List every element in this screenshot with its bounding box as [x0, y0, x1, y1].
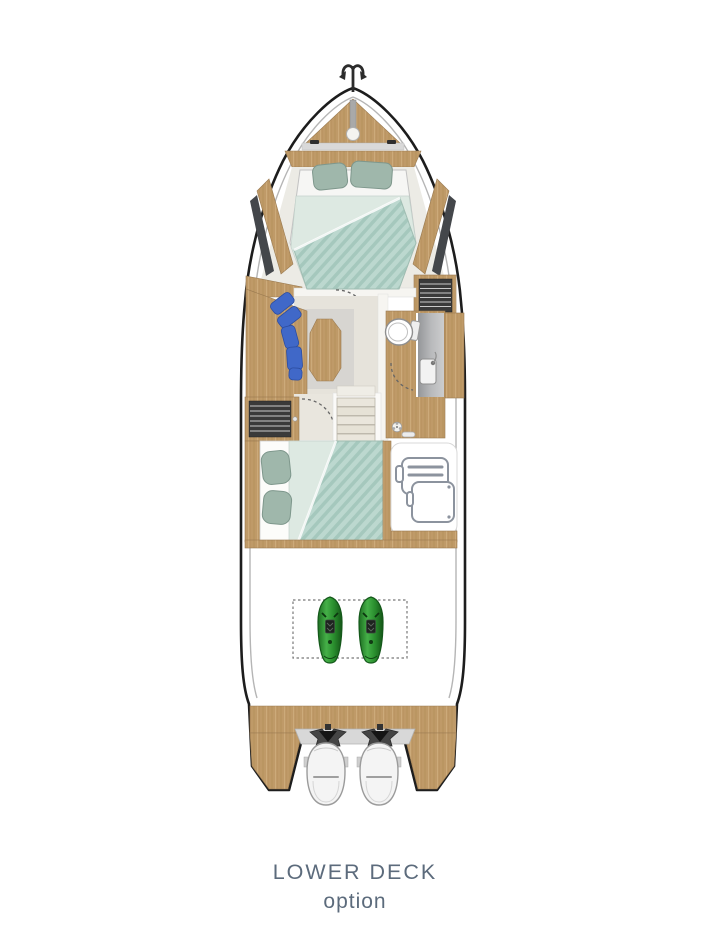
platform-wing-left — [250, 733, 302, 789]
pillow — [312, 162, 348, 190]
yacht-lower-deck-plan: LOWER DECK option — [0, 0, 710, 947]
page-title: LOWER DECK — [273, 860, 438, 884]
cabin-divider — [383, 441, 391, 542]
luggage-area — [391, 443, 457, 542]
cleat-icon — [310, 140, 319, 144]
pillow — [350, 161, 393, 190]
double-bed-mid — [260, 441, 383, 542]
wardrobe-knob — [293, 417, 297, 421]
double-bed-forward — [290, 161, 416, 289]
bow-deck-step — [302, 143, 404, 150]
table-icon — [309, 319, 341, 381]
mid-cabin — [245, 441, 457, 548]
deck-plan-canvas: LOWER DECK option — [0, 0, 710, 947]
platform-wing-right — [404, 733, 456, 789]
stairs-icon — [333, 386, 381, 443]
outboard-engine-icon-left — [304, 743, 348, 805]
pillow — [262, 490, 293, 525]
page-subtitle: option — [323, 890, 386, 913]
seabob-icon-left — [318, 597, 342, 663]
threshold-handle — [402, 432, 415, 437]
bathroom-side-panel — [445, 313, 464, 398]
wardrobe-right — [414, 275, 456, 316]
cleat-icon — [387, 140, 396, 144]
pillow — [260, 450, 291, 486]
cabin-shelf-left — [245, 441, 260, 542]
deck-hatch — [347, 128, 360, 141]
outboard-engine-icon-right — [357, 743, 401, 805]
aft-bulkhead — [245, 540, 457, 548]
vent-icon — [392, 422, 402, 432]
seabob-icon-right — [359, 597, 383, 663]
anchor-icon — [339, 66, 367, 92]
wardrobe-left — [245, 397, 299, 441]
